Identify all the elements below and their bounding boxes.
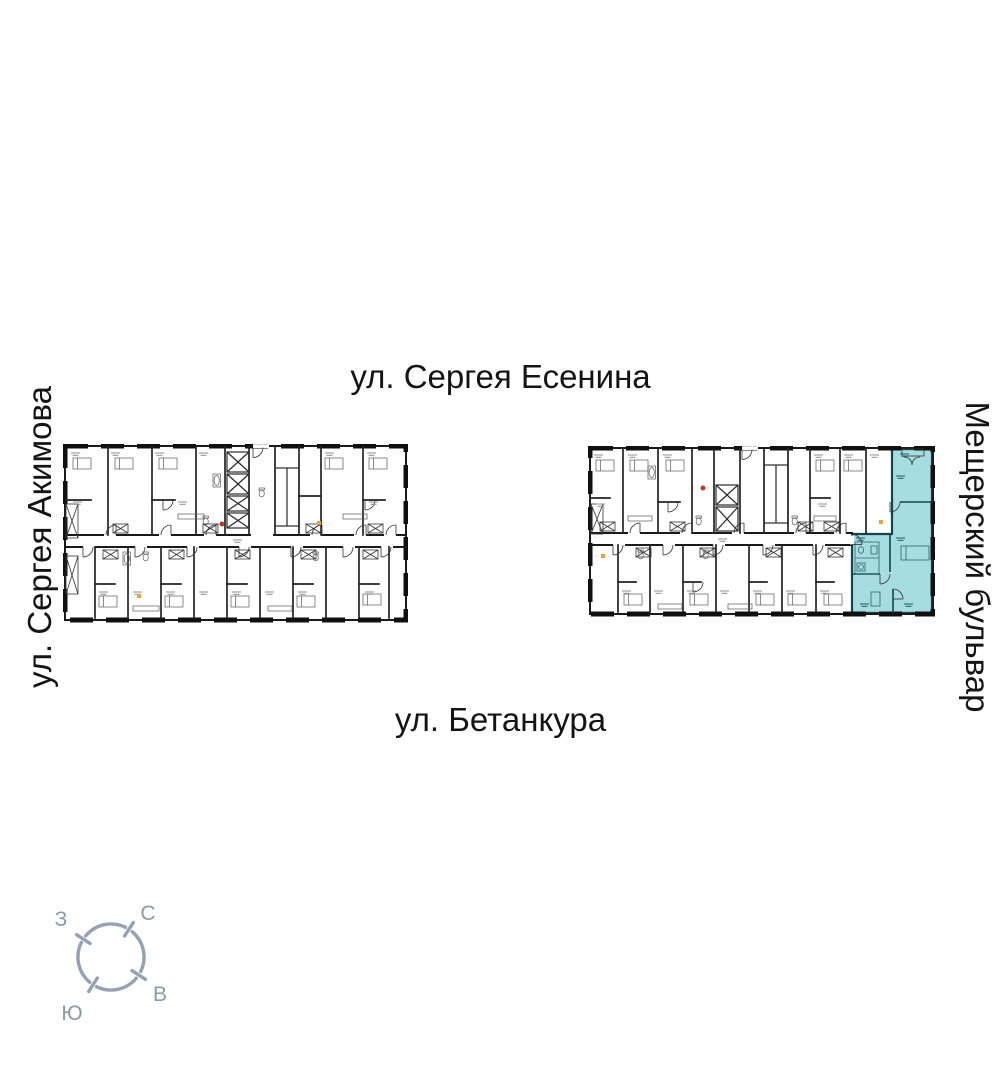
floor-plan-building-left xyxy=(63,444,408,624)
compass-circle xyxy=(77,923,146,992)
compass-label-south: Ю xyxy=(61,1002,82,1025)
compass-label-west: З xyxy=(55,908,68,931)
compass-tick-west xyxy=(77,935,90,944)
compass-label-east: В xyxy=(153,983,167,1006)
street-label-akimova: ул. Сергея Акимова xyxy=(21,327,59,747)
utility-marker-left-2 xyxy=(137,594,141,598)
street-label-esenina: ул. Сергея Есенина xyxy=(0,358,1001,396)
compass-label-north: С xyxy=(140,902,155,925)
utility-marker-left-1 xyxy=(317,521,321,525)
street-label-meshchersky: Мещерский бульвар xyxy=(958,347,996,767)
street-label-betankura: ул. Бетанкура xyxy=(0,701,1001,739)
utility-marker-right-1 xyxy=(879,520,883,524)
floor-plan-building-right xyxy=(588,446,935,618)
fire-equipment-marker-left xyxy=(220,522,225,527)
compass-tick-south xyxy=(89,978,98,991)
compass-tick-east xyxy=(132,971,145,980)
compass-tick-north xyxy=(125,923,134,936)
compass-rose: С З В Ю xyxy=(40,895,190,1035)
utility-marker-right-2 xyxy=(601,554,605,558)
site-plan-canvas: ул. Сергея Есенина ул. Бетанкура ул. Сер… xyxy=(0,0,1001,1068)
fire-equipment-marker-right xyxy=(701,486,706,491)
